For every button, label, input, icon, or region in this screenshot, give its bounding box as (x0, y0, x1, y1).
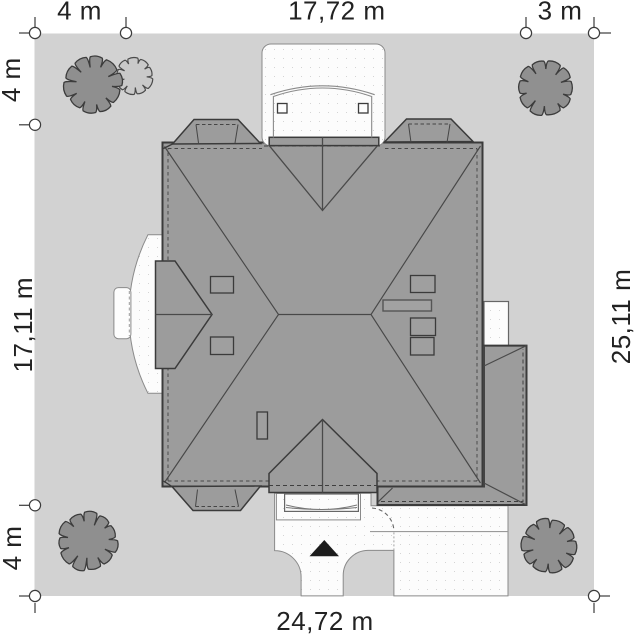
svg-text:4 m: 4 m (0, 526, 27, 571)
svg-text:24,72 m: 24,72 m (276, 606, 373, 636)
svg-text:3 m: 3 m (538, 0, 583, 26)
svg-text:17,72 m: 17,72 m (288, 0, 385, 26)
svg-text:25,11 m: 25,11 m (606, 269, 634, 365)
svg-text:4 m: 4 m (0, 57, 26, 102)
svg-text:17,11 m: 17,11 m (8, 277, 38, 373)
svg-text:4 m: 4 m (57, 0, 102, 26)
